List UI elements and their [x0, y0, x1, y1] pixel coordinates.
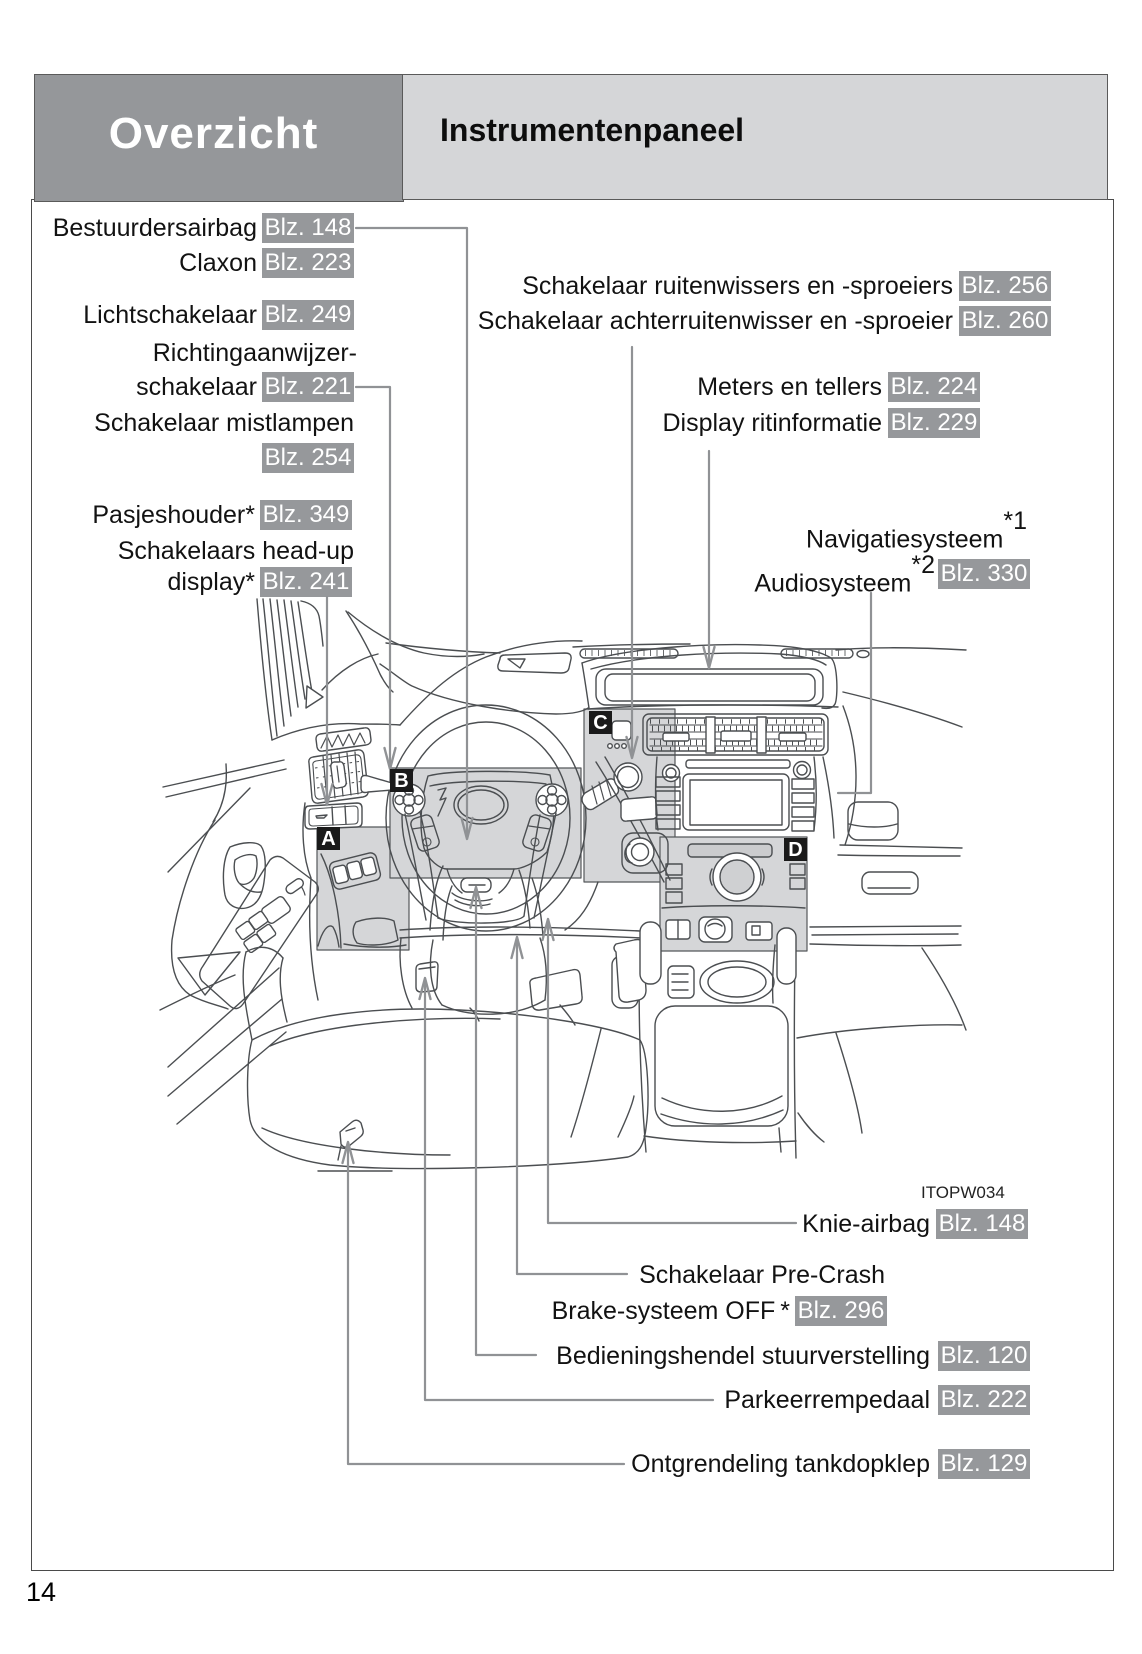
svg-text:A: A [321, 828, 335, 850]
svg-text:D: D [788, 839, 802, 861]
svg-text:B: B [394, 770, 408, 792]
svg-text:C: C [593, 712, 607, 734]
